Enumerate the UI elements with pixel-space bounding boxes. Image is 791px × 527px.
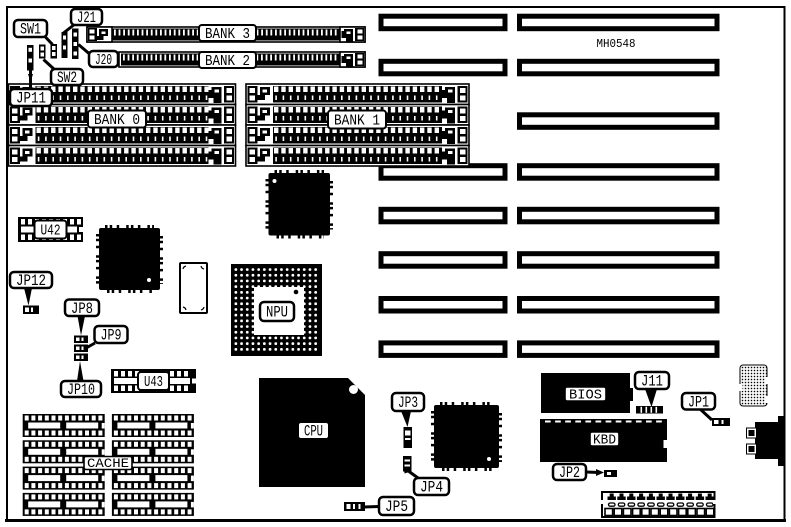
svg-text:JP11: JP11 (16, 90, 46, 108)
svg-text:MH0548: MH0548 (597, 37, 636, 51)
svg-text:J11: J11 (641, 373, 663, 391)
svg-text:JP1: JP1 (688, 393, 709, 411)
svg-text:JP12: JP12 (16, 272, 46, 290)
svg-text:CACHE: CACHE (87, 456, 129, 471)
svg-text:U42: U42 (41, 222, 61, 239)
svg-text:JP8: JP8 (71, 300, 93, 318)
svg-text:JP2: JP2 (559, 464, 580, 482)
svg-text:CPU: CPU (304, 423, 323, 441)
svg-text:BANK 2: BANK 2 (205, 53, 250, 70)
svg-text:KBD: KBD (593, 433, 616, 449)
svg-text:BANK 3: BANK 3 (205, 26, 250, 43)
svg-text:BANK 1: BANK 1 (334, 112, 380, 129)
svg-text:U43: U43 (144, 374, 163, 391)
svg-text:JP10: JP10 (67, 381, 95, 399)
svg-text:BANK 0: BANK 0 (94, 112, 140, 129)
svg-text:J21: J21 (77, 9, 96, 27)
svg-text:SW1: SW1 (20, 21, 41, 39)
svg-text:JP4: JP4 (420, 479, 443, 497)
svg-text:JP5: JP5 (385, 498, 408, 516)
svg-text:JP9: JP9 (101, 327, 122, 345)
svg-text:NPU: NPU (266, 304, 288, 322)
svg-text:JP3: JP3 (398, 394, 418, 412)
svg-text:J20: J20 (95, 52, 112, 69)
svg-text:BIOS: BIOS (569, 388, 602, 404)
svg-text:SW2: SW2 (57, 69, 77, 87)
